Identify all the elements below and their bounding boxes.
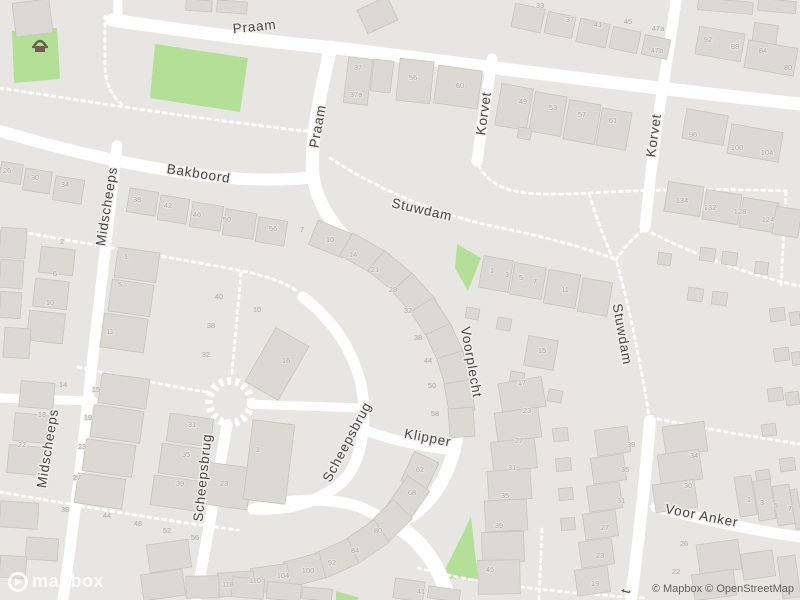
house-number-label: 50 bbox=[428, 381, 436, 390]
house-number-label: 38 bbox=[414, 333, 422, 342]
mapbox-logo[interactable]: mapbox bbox=[8, 571, 104, 592]
house-number-label: 92 bbox=[704, 35, 712, 44]
house-number-label: 50 bbox=[223, 215, 231, 224]
building bbox=[495, 84, 534, 131]
road bbox=[251, 404, 362, 408]
building bbox=[758, 0, 797, 14]
house-number-label: 21 bbox=[371, 265, 379, 274]
house-number-label: 19 bbox=[591, 579, 599, 588]
building bbox=[696, 539, 742, 575]
house-number-label: 39 bbox=[176, 479, 184, 488]
house-number-label: 7 bbox=[788, 504, 792, 513]
building bbox=[791, 352, 800, 366]
house-number-label: 48 bbox=[134, 519, 142, 528]
building bbox=[0, 259, 24, 289]
house-number-label: 80 bbox=[784, 63, 792, 72]
house-number-label: 96 bbox=[689, 130, 697, 139]
house-number-label: 5 bbox=[519, 273, 523, 282]
building bbox=[186, 0, 213, 12]
street-name-label: Praam bbox=[232, 17, 277, 36]
house-number-label: 23 bbox=[78, 442, 86, 451]
house-number-label: 53 bbox=[549, 103, 557, 112]
house-number-label: 23 bbox=[220, 479, 228, 488]
building bbox=[90, 405, 144, 444]
building bbox=[772, 206, 800, 238]
building bbox=[657, 252, 672, 266]
house-number-label: 26 bbox=[3, 166, 11, 175]
house-number-label: 1 bbox=[124, 252, 128, 261]
house-number-label: 42 bbox=[164, 201, 172, 210]
house-number-label: 5 bbox=[118, 280, 122, 289]
house-number-label: 32 bbox=[202, 350, 210, 359]
footpath bbox=[616, 229, 645, 260]
building bbox=[302, 587, 333, 600]
house-number-label: 17 bbox=[518, 378, 526, 387]
house-number-label: 84 bbox=[351, 546, 359, 555]
building bbox=[547, 389, 563, 403]
house-number-label: 3 bbox=[505, 270, 509, 279]
house-number-label: 38 bbox=[133, 195, 141, 204]
house-number-label: 6 bbox=[53, 269, 57, 278]
house-number-label: 52 bbox=[163, 526, 171, 535]
building bbox=[496, 317, 512, 331]
building bbox=[596, 108, 632, 151]
house-number-label: 104 bbox=[761, 148, 774, 157]
building bbox=[767, 387, 784, 402]
house-number-label: 34 bbox=[61, 180, 69, 189]
house-number-label: 124 bbox=[762, 215, 775, 224]
building bbox=[559, 487, 574, 500]
building bbox=[789, 311, 800, 325]
map-attribution[interactable]: © Mapbox © OpenStreetMap bbox=[652, 583, 794, 595]
map-canvas[interactable]: PraamPraamBakboordMidscheepsMidscheepsKo… bbox=[0, 0, 800, 600]
house-number-label: 19 bbox=[84, 413, 92, 422]
house-number-label: 57 bbox=[578, 110, 586, 119]
street-name-label: Bakboord bbox=[166, 161, 232, 186]
building bbox=[509, 262, 546, 299]
building bbox=[27, 310, 66, 344]
house-number-label: 37 bbox=[566, 15, 574, 24]
house-number-label: 41 bbox=[417, 587, 425, 596]
house-number-label: 35 bbox=[182, 450, 190, 459]
house-number-label: 34 bbox=[690, 451, 698, 460]
street-name-label: Voor Anker bbox=[664, 501, 740, 530]
house-number-label: 28 bbox=[389, 285, 397, 294]
house-number-label: 38 bbox=[207, 321, 215, 330]
building bbox=[357, 0, 398, 34]
building bbox=[529, 92, 567, 137]
house-number-label: 56 bbox=[409, 73, 417, 82]
house-number-label: 31 bbox=[188, 420, 196, 429]
house-number-label: 45 bbox=[486, 565, 494, 574]
house-number-label: 110 bbox=[249, 576, 261, 585]
building bbox=[481, 531, 524, 562]
building bbox=[773, 347, 790, 362]
house-number-label: 5 bbox=[774, 501, 778, 510]
house-number-label: 40 bbox=[215, 292, 223, 301]
building bbox=[609, 26, 641, 53]
building bbox=[761, 423, 777, 437]
footpath bbox=[232, 273, 241, 373]
building bbox=[74, 473, 126, 509]
house-number-label: 58 bbox=[431, 409, 439, 418]
house-number-label: 27 bbox=[73, 473, 81, 482]
house-number-label: 31 bbox=[617, 496, 625, 505]
building bbox=[0, 291, 22, 318]
house-number-label: 100 bbox=[731, 143, 744, 152]
building bbox=[146, 539, 191, 573]
house-number-label: 22 bbox=[672, 567, 680, 576]
house-number-label: 15 bbox=[92, 385, 100, 394]
building bbox=[769, 307, 786, 322]
house-number-label: 39 bbox=[495, 521, 503, 530]
house-number-label: 26 bbox=[680, 539, 688, 548]
house-number-label: 56 bbox=[191, 533, 199, 542]
building bbox=[108, 279, 154, 317]
building bbox=[217, 0, 248, 14]
footpath bbox=[589, 194, 613, 258]
building bbox=[754, 261, 769, 275]
house-number-label: 49 bbox=[519, 97, 527, 106]
building bbox=[126, 188, 158, 216]
house-number-label: 39 bbox=[627, 440, 635, 449]
building bbox=[157, 195, 190, 224]
house-number-label: 14 bbox=[59, 380, 67, 389]
house-number-label: 45 bbox=[624, 17, 632, 26]
house-number-label: 35 bbox=[501, 491, 509, 500]
house-number-label: 104 bbox=[277, 571, 290, 580]
house-number-label: 32 bbox=[404, 306, 412, 315]
mapbox-logo-icon bbox=[8, 572, 28, 592]
house-number-label: 7 bbox=[533, 277, 537, 286]
house-number-label: 27 bbox=[601, 523, 609, 532]
house-number-label: 134 bbox=[676, 196, 689, 205]
house-number-label: 128 bbox=[734, 207, 747, 216]
building bbox=[82, 439, 136, 478]
house-number-label: 7 bbox=[300, 225, 304, 234]
house-number-label: 37a bbox=[350, 90, 363, 99]
house-number-label: 132 bbox=[704, 203, 717, 212]
house-number-label: 10 bbox=[253, 305, 261, 314]
house-number-label: 41 bbox=[594, 20, 602, 29]
house-number-label: 118 bbox=[222, 580, 234, 589]
roundabout bbox=[209, 381, 251, 423]
house-number-label: 30 bbox=[31, 173, 39, 182]
building bbox=[140, 569, 185, 600]
street-name-label: Stuwdam bbox=[610, 302, 636, 366]
house-number-label: 30 bbox=[684, 481, 692, 490]
building bbox=[484, 499, 528, 532]
building bbox=[427, 586, 460, 600]
house-number-label: 68 bbox=[408, 488, 416, 497]
building bbox=[114, 247, 160, 283]
street-name-label: Praam bbox=[306, 103, 328, 149]
street-name-label: Korvet bbox=[643, 113, 664, 158]
building bbox=[594, 426, 630, 456]
building bbox=[487, 469, 532, 502]
building bbox=[0, 501, 39, 530]
street-name-label: Stuwdam bbox=[390, 195, 454, 224]
building bbox=[98, 373, 150, 409]
house-number-label: 100 bbox=[302, 566, 315, 575]
house-number-label: 61 bbox=[609, 116, 617, 125]
house-number-label: 27 bbox=[515, 436, 523, 445]
house-number-label: 3 bbox=[760, 498, 764, 507]
building bbox=[785, 391, 800, 406]
house-number-label: 23 bbox=[596, 551, 604, 560]
building bbox=[245, 328, 309, 401]
house-number-label: 37 bbox=[354, 63, 362, 72]
building bbox=[478, 560, 521, 595]
building bbox=[682, 109, 729, 146]
building bbox=[577, 278, 612, 317]
house-number-label: 10 bbox=[46, 298, 54, 307]
building bbox=[555, 457, 571, 471]
house-number-label: 62 bbox=[416, 465, 424, 474]
house-number-label: 92 bbox=[328, 558, 336, 567]
house-number-label: 10 bbox=[326, 235, 334, 244]
house-number-label: 47a bbox=[652, 24, 665, 33]
building bbox=[698, 0, 754, 14]
building bbox=[448, 407, 475, 438]
house-number-label: 14 bbox=[349, 250, 357, 259]
house-number-label: 15 bbox=[538, 346, 546, 355]
house-number-label: 35 bbox=[621, 465, 629, 474]
building bbox=[552, 427, 568, 441]
footpath bbox=[781, 192, 786, 285]
building bbox=[687, 287, 704, 302]
house-number-label: 1 bbox=[256, 445, 260, 454]
building bbox=[563, 100, 601, 145]
house-number-label: 46 bbox=[193, 210, 201, 219]
house-number-label: 18 bbox=[38, 410, 46, 419]
house-number-label: 44 bbox=[103, 511, 111, 520]
building bbox=[517, 127, 532, 140]
house-number-label: 11 bbox=[106, 327, 114, 336]
building bbox=[0, 227, 27, 259]
building bbox=[779, 457, 796, 472]
footpath bbox=[105, 16, 125, 107]
building bbox=[25, 537, 58, 561]
building bbox=[222, 209, 257, 240]
building bbox=[465, 307, 480, 320]
footpath bbox=[479, 166, 786, 194]
house-number-label: 11 bbox=[561, 285, 569, 294]
street-name-label: Midscheeps bbox=[93, 166, 120, 247]
map-viewport: PraamPraamBakboordMidscheepsMidscheepsKo… bbox=[0, 0, 800, 600]
house-number-label: 23 bbox=[523, 406, 531, 415]
building bbox=[721, 251, 738, 266]
building bbox=[19, 381, 55, 410]
building bbox=[266, 582, 301, 600]
house-number-label: 84 bbox=[759, 46, 767, 55]
house-number-label: 60 bbox=[456, 81, 464, 90]
building bbox=[186, 576, 219, 599]
footpath bbox=[539, 529, 542, 600]
building bbox=[370, 59, 394, 93]
house-number-label: 38 bbox=[61, 505, 69, 514]
building bbox=[740, 550, 775, 580]
house-number-label: 31 bbox=[508, 463, 516, 472]
building bbox=[699, 247, 716, 262]
house-number-label: 80 bbox=[374, 526, 382, 535]
house-number-label: 56 bbox=[269, 224, 277, 233]
building bbox=[561, 517, 576, 530]
building bbox=[243, 420, 294, 505]
house-number-label: 47b bbox=[651, 46, 664, 55]
house-number-label: 22 bbox=[18, 440, 26, 449]
house-number-label: 88 bbox=[731, 42, 739, 51]
house-number-label: 16 bbox=[282, 356, 290, 365]
house-number-label: 1 bbox=[490, 266, 494, 275]
building bbox=[12, 0, 53, 37]
mapbox-logo-text: mapbox bbox=[32, 571, 104, 592]
house-number-label: 44 bbox=[424, 356, 432, 365]
house-number-label: 1 bbox=[747, 495, 751, 504]
house-number-label: 33 bbox=[536, 1, 544, 10]
building bbox=[711, 291, 728, 306]
house-number-label: 2 bbox=[60, 237, 64, 246]
building bbox=[3, 327, 31, 359]
